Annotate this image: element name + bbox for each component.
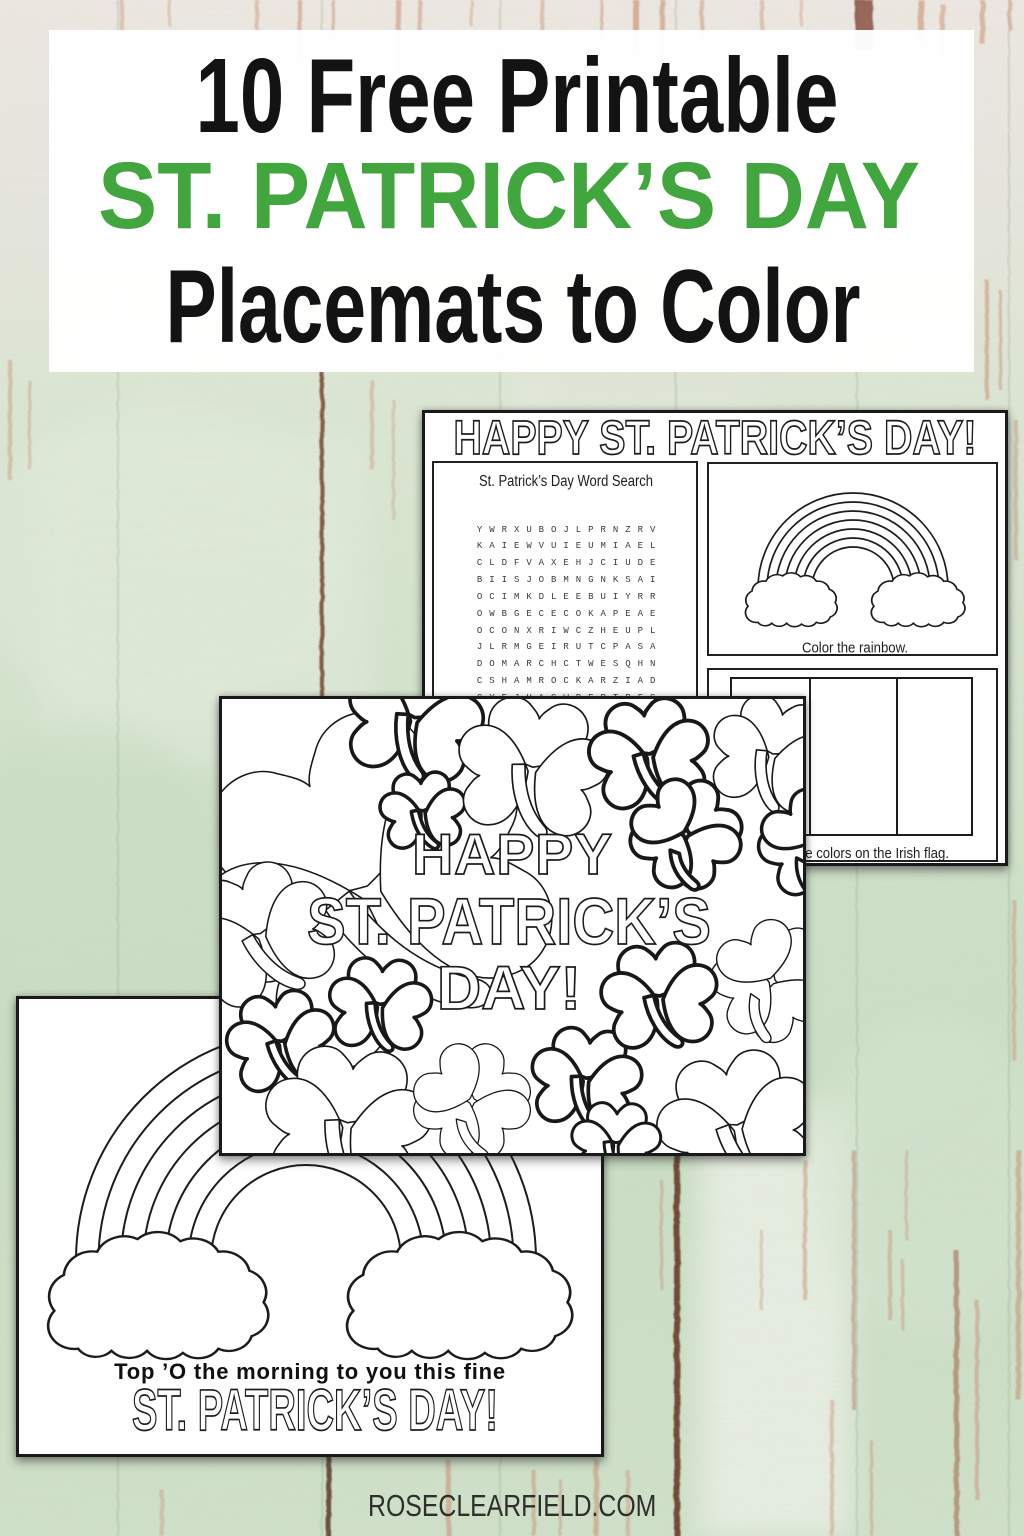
svg-text:Color the rainbow.: Color the rainbow. xyxy=(802,640,908,655)
